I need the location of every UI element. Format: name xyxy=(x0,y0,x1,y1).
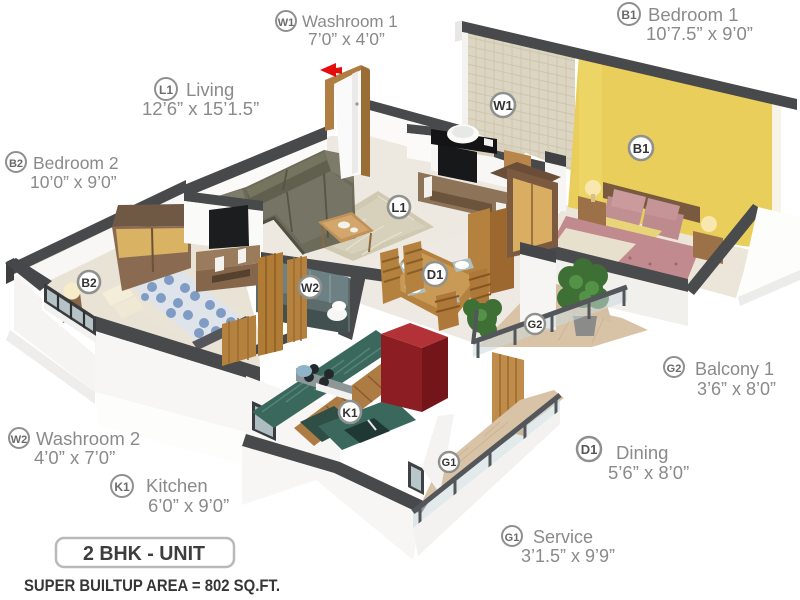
svg-text:Bedroom 2: Bedroom 2 xyxy=(33,153,119,173)
svg-text:K1: K1 xyxy=(342,406,358,420)
svg-text:D1: D1 xyxy=(581,442,598,457)
svg-text:D1: D1 xyxy=(427,267,444,282)
svg-text:Kitchen: Kitchen xyxy=(146,475,208,496)
svg-text:Balcony 1: Balcony 1 xyxy=(695,359,774,379)
svg-text:L1: L1 xyxy=(391,200,406,215)
svg-text:2 BHK - UNIT: 2 BHK - UNIT xyxy=(83,543,205,565)
svg-text:G2: G2 xyxy=(528,319,543,331)
svg-text:Service: Service xyxy=(533,527,593,547)
svg-text:12’6” x 15’1.5”: 12’6” x 15’1.5” xyxy=(142,98,259,119)
svg-text:7’0” x 4’0”: 7’0” x 4’0” xyxy=(308,29,385,49)
svg-text:W1: W1 xyxy=(278,17,295,29)
svg-text:L1: L1 xyxy=(159,83,173,97)
svg-text:B2: B2 xyxy=(81,276,97,290)
svg-text:6’0” x 9’0”: 6’0” x 9’0” xyxy=(148,495,229,516)
svg-text:K1: K1 xyxy=(114,480,130,494)
svg-text:G1: G1 xyxy=(505,532,520,544)
svg-text:B1: B1 xyxy=(633,141,650,156)
svg-text:G1: G1 xyxy=(442,457,457,469)
svg-text:Bedroom 1: Bedroom 1 xyxy=(648,4,739,25)
svg-text:B2: B2 xyxy=(9,158,23,170)
svg-text:Washroom 2: Washroom 2 xyxy=(36,428,140,449)
svg-text:10’7.5” x 9’0”: 10’7.5” x 9’0” xyxy=(646,23,753,44)
svg-text:SUPER BUILTUP AREA = 802 SQ.FT: SUPER BUILTUP AREA = 802 SQ.FT. xyxy=(24,576,280,595)
svg-text:4’0” x 7’0”: 4’0” x 7’0” xyxy=(34,447,115,468)
svg-text:5’6” x 8’0”: 5’6” x 8’0” xyxy=(608,462,689,483)
svg-text:3’1.5” x 9’9”: 3’1.5” x 9’9” xyxy=(521,546,615,566)
svg-text:G2: G2 xyxy=(667,363,682,375)
svg-text:W2: W2 xyxy=(11,434,28,446)
svg-text:Dining: Dining xyxy=(616,442,668,463)
svg-text:3’6” x 8’0”: 3’6” x 8’0” xyxy=(697,379,776,399)
svg-text:Living: Living xyxy=(186,79,234,100)
svg-text:W2: W2 xyxy=(301,281,319,295)
svg-text:10’0” x 9’0”: 10’0” x 9’0” xyxy=(30,172,117,192)
svg-text:B1: B1 xyxy=(621,8,637,22)
svg-text:W1: W1 xyxy=(493,98,513,113)
